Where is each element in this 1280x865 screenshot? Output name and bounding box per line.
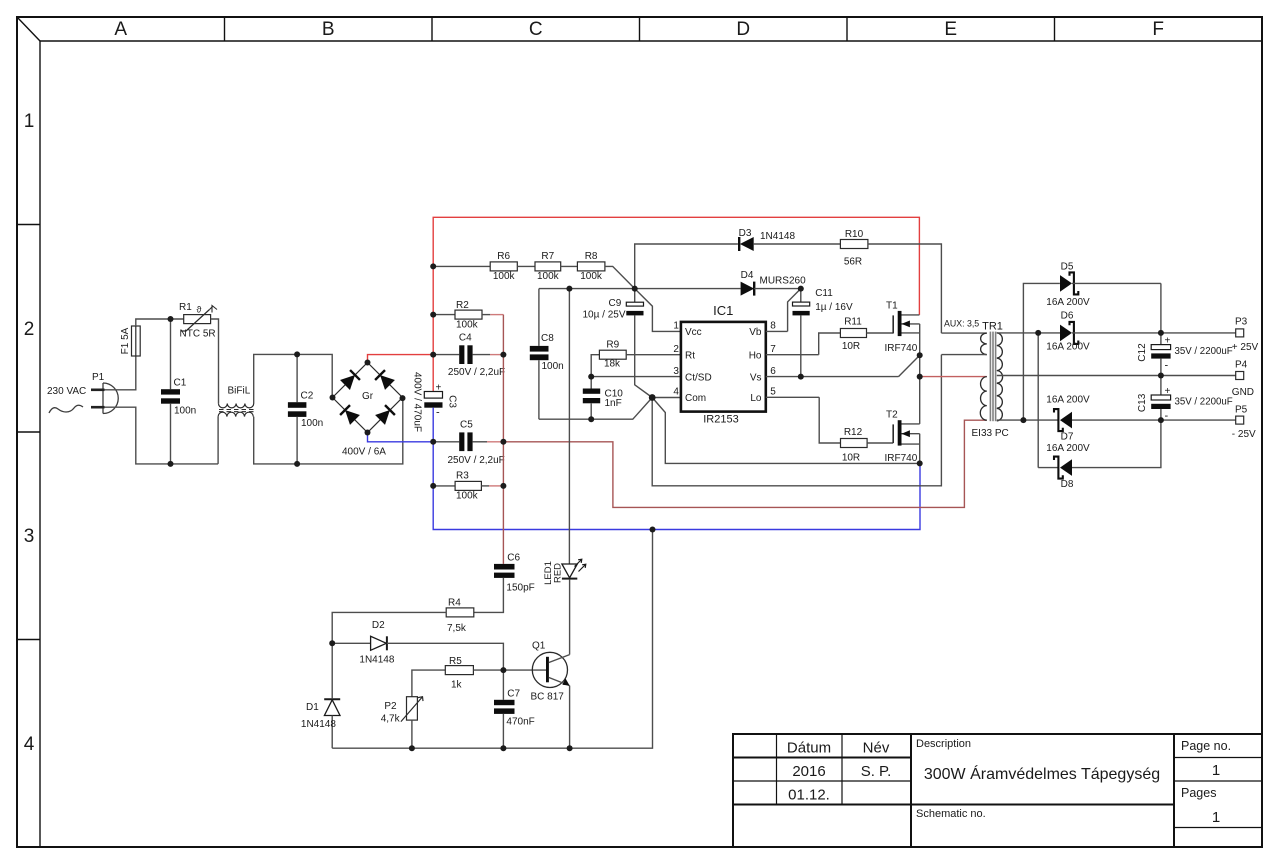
svg-text:IRF740: IRF740 bbox=[885, 453, 918, 464]
svg-text:16A 200V: 16A 200V bbox=[1046, 297, 1090, 308]
svg-text:B: B bbox=[322, 19, 335, 40]
svg-text:D3: D3 bbox=[739, 228, 752, 239]
svg-text:F1 5A: F1 5A bbox=[120, 327, 131, 354]
svg-text:+: + bbox=[436, 383, 442, 394]
svg-text:400V / 470uF: 400V / 470uF bbox=[412, 372, 423, 432]
svg-text:300W Áramvédelmes Tápegység: 300W Áramvédelmes Tápegység bbox=[924, 764, 1160, 783]
svg-text:C6: C6 bbox=[507, 553, 520, 564]
svg-text:35V / 2200uF: 35V / 2200uF bbox=[1175, 346, 1233, 357]
svg-text:T1: T1 bbox=[886, 300, 898, 311]
svg-text:250V / 2,2uF: 250V / 2,2uF bbox=[448, 455, 505, 466]
svg-text:2016: 2016 bbox=[792, 763, 825, 780]
svg-text:C12: C12 bbox=[1137, 343, 1148, 362]
svg-text:C2: C2 bbox=[301, 391, 314, 402]
svg-text:230 VAC: 230 VAC bbox=[47, 386, 86, 397]
svg-text:IR2153: IR2153 bbox=[703, 414, 738, 426]
svg-text:250V / 2,2uF: 250V / 2,2uF bbox=[448, 367, 505, 378]
svg-text:RED: RED bbox=[553, 563, 564, 583]
svg-text:S. P.: S. P. bbox=[861, 763, 892, 780]
svg-text:Gr: Gr bbox=[362, 391, 374, 402]
svg-text:D5: D5 bbox=[1061, 262, 1074, 273]
svg-text:R2: R2 bbox=[456, 300, 469, 311]
svg-text:R1: R1 bbox=[179, 302, 192, 313]
svg-text:100k: 100k bbox=[580, 271, 603, 282]
svg-text:D1: D1 bbox=[306, 702, 319, 713]
svg-text:1N4148: 1N4148 bbox=[359, 654, 394, 665]
svg-text:Page no.: Page no. bbox=[1181, 739, 1231, 753]
svg-text:Com: Com bbox=[685, 393, 706, 404]
svg-text:18k: 18k bbox=[604, 358, 621, 369]
svg-text:D: D bbox=[736, 19, 750, 40]
svg-text:-: - bbox=[436, 407, 440, 419]
svg-text:1N4148: 1N4148 bbox=[301, 719, 336, 730]
svg-text:C9: C9 bbox=[609, 298, 622, 309]
svg-text:100n: 100n bbox=[301, 418, 323, 429]
svg-text:+: + bbox=[1165, 386, 1171, 397]
svg-text:R10: R10 bbox=[845, 229, 864, 240]
svg-text:R4: R4 bbox=[448, 598, 461, 609]
svg-text:100k: 100k bbox=[537, 271, 560, 282]
svg-text:470nF: 470nF bbox=[506, 716, 534, 727]
svg-text:Pages: Pages bbox=[1181, 786, 1216, 800]
svg-text:C13: C13 bbox=[1137, 393, 1148, 412]
svg-text:BiFiL: BiFiL bbox=[228, 386, 251, 397]
svg-text:R7: R7 bbox=[541, 251, 554, 262]
svg-text:7,5k: 7,5k bbox=[447, 623, 467, 634]
svg-text:D6: D6 bbox=[1061, 311, 1074, 322]
svg-text:C: C bbox=[529, 19, 543, 40]
svg-text:C7: C7 bbox=[507, 689, 520, 700]
svg-text:Név: Név bbox=[863, 740, 890, 757]
svg-text:MURS260: MURS260 bbox=[760, 276, 807, 287]
svg-text:R12: R12 bbox=[844, 427, 863, 438]
svg-text:NTC 5R: NTC 5R bbox=[180, 329, 216, 340]
svg-text:8: 8 bbox=[770, 321, 776, 332]
svg-text:Q1: Q1 bbox=[532, 641, 546, 652]
svg-text:IRF740: IRF740 bbox=[885, 343, 918, 354]
svg-text:P1: P1 bbox=[92, 372, 105, 383]
svg-text:10R: 10R bbox=[842, 341, 860, 352]
svg-text:100k: 100k bbox=[493, 271, 516, 282]
svg-text:Ct/SD: Ct/SD bbox=[685, 372, 712, 383]
svg-text:R5: R5 bbox=[449, 656, 462, 667]
svg-text:3: 3 bbox=[24, 526, 35, 547]
svg-text:- 25V: - 25V bbox=[1232, 429, 1256, 440]
svg-text:Schematic no.: Schematic no. bbox=[916, 808, 986, 820]
svg-text:16A 200V: 16A 200V bbox=[1046, 342, 1090, 353]
svg-text:Description: Description bbox=[916, 738, 971, 750]
svg-text:F: F bbox=[1152, 19, 1164, 40]
svg-text:GND: GND bbox=[1232, 387, 1254, 398]
svg-text:R9: R9 bbox=[606, 340, 619, 351]
svg-text:16A 200V: 16A 200V bbox=[1046, 394, 1090, 405]
svg-text:P4: P4 bbox=[1235, 359, 1248, 370]
svg-text:Rt: Rt bbox=[685, 351, 695, 362]
svg-text:C4: C4 bbox=[459, 333, 472, 344]
svg-text:1nF: 1nF bbox=[605, 398, 622, 409]
svg-text:4,7k: 4,7k bbox=[381, 714, 401, 725]
svg-text:C8: C8 bbox=[541, 333, 554, 344]
svg-text:56R: 56R bbox=[844, 256, 862, 267]
svg-text:R8: R8 bbox=[585, 251, 598, 262]
svg-text:1: 1 bbox=[24, 111, 35, 132]
svg-text:P5: P5 bbox=[1235, 405, 1248, 416]
svg-text:6: 6 bbox=[770, 366, 776, 377]
svg-text:R11: R11 bbox=[844, 317, 862, 328]
svg-text:1: 1 bbox=[1212, 762, 1220, 779]
svg-text:AUX: 3,5: AUX: 3,5 bbox=[944, 319, 979, 329]
svg-text:5: 5 bbox=[770, 387, 776, 398]
svg-text:EI33 PC: EI33 PC bbox=[972, 428, 1009, 439]
svg-text:7: 7 bbox=[770, 344, 776, 355]
svg-text:Vs: Vs bbox=[750, 372, 762, 383]
svg-text:1: 1 bbox=[1212, 809, 1220, 826]
svg-text:1k: 1k bbox=[451, 679, 463, 690]
svg-text:C3: C3 bbox=[447, 395, 458, 408]
svg-text:C11: C11 bbox=[815, 288, 833, 299]
svg-text:35V / 2200uF: 35V / 2200uF bbox=[1175, 396, 1233, 407]
svg-text:3: 3 bbox=[673, 366, 679, 377]
svg-text:D2: D2 bbox=[372, 620, 385, 631]
svg-text:4: 4 bbox=[673, 387, 679, 398]
svg-text:150pF: 150pF bbox=[506, 582, 534, 593]
svg-text:BC 817: BC 817 bbox=[531, 692, 565, 703]
svg-text:01.12.: 01.12. bbox=[788, 787, 830, 804]
svg-text:Ho: Ho bbox=[749, 351, 762, 362]
svg-text:P2: P2 bbox=[384, 701, 397, 712]
svg-text:D7: D7 bbox=[1061, 432, 1074, 443]
svg-text:1µ / 16V: 1µ / 16V bbox=[815, 302, 853, 313]
svg-text:100k: 100k bbox=[456, 491, 479, 502]
svg-text:16A 200V: 16A 200V bbox=[1046, 443, 1090, 454]
svg-text:-: - bbox=[1165, 360, 1169, 372]
svg-text:1N4148: 1N4148 bbox=[760, 231, 795, 242]
svg-text:1: 1 bbox=[673, 321, 679, 332]
svg-text:A: A bbox=[114, 19, 127, 40]
svg-text:T2: T2 bbox=[886, 410, 898, 421]
svg-text:100k: 100k bbox=[456, 320, 479, 331]
svg-text:ϑ: ϑ bbox=[197, 305, 202, 315]
svg-text:TR1: TR1 bbox=[982, 321, 1003, 333]
svg-text:E: E bbox=[944, 19, 957, 40]
svg-text:2: 2 bbox=[24, 319, 35, 340]
svg-text:100n: 100n bbox=[174, 406, 196, 417]
svg-text:C1: C1 bbox=[174, 378, 187, 389]
svg-text:10R: 10R bbox=[842, 453, 860, 464]
svg-text:+ 25V: + 25V bbox=[1232, 342, 1259, 353]
svg-text:400V / 6A: 400V / 6A bbox=[342, 447, 386, 458]
svg-text:Dátum: Dátum bbox=[787, 740, 831, 757]
svg-text:2: 2 bbox=[673, 344, 679, 355]
svg-text:10µ / 25V: 10µ / 25V bbox=[583, 309, 626, 320]
svg-text:100n: 100n bbox=[542, 361, 564, 372]
svg-text:C5: C5 bbox=[460, 420, 473, 431]
svg-text:+: + bbox=[1165, 336, 1171, 347]
svg-text:P3: P3 bbox=[1235, 317, 1248, 328]
svg-text:R6: R6 bbox=[497, 251, 510, 262]
svg-text:4: 4 bbox=[24, 734, 35, 755]
svg-text:R3: R3 bbox=[456, 471, 469, 482]
svg-text:Vcc: Vcc bbox=[685, 327, 702, 338]
svg-text:Lo: Lo bbox=[750, 393, 762, 404]
svg-text:IC1: IC1 bbox=[713, 303, 733, 318]
svg-text:D4: D4 bbox=[741, 270, 754, 281]
svg-text:Vb: Vb bbox=[749, 327, 762, 338]
svg-text:D8: D8 bbox=[1061, 479, 1074, 490]
